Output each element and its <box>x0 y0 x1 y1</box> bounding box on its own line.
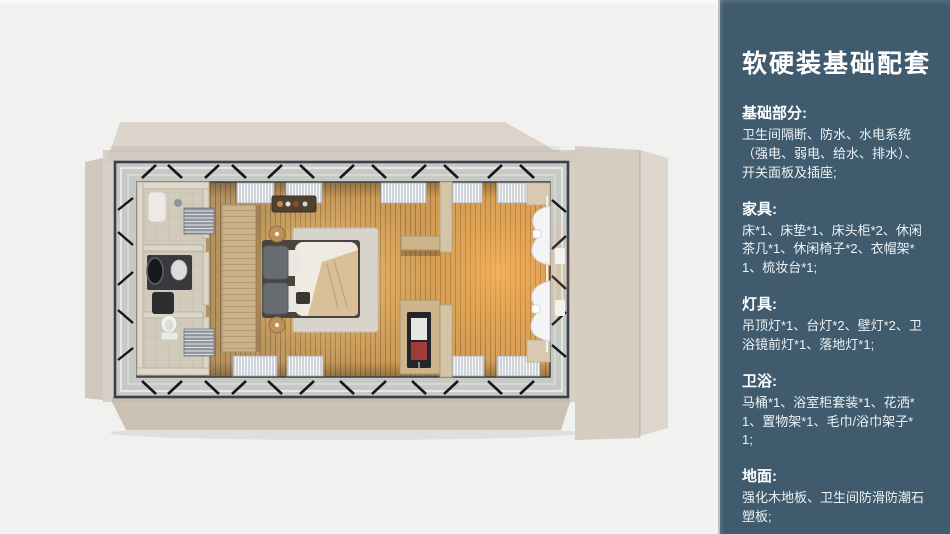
bottle-2 <box>286 202 291 207</box>
right-door-flap-outer <box>640 150 668 436</box>
bathroom-wall-right-b <box>203 252 209 305</box>
stool-item-2 <box>275 323 279 327</box>
panel-title: 软硬装基础配套 <box>742 44 936 80</box>
section-flooring-body: 强化木地板、卫生间防滑防潮石塑板; <box>742 489 924 527</box>
section-furniture-body: 床*1、床垫*1、床头柜*2、休闲茶几*1、休闲椅子*2、衣帽架*1、梳妆台*1… <box>742 222 924 279</box>
toilet-seat <box>165 320 174 331</box>
bathroom-wall-top <box>137 182 209 189</box>
headboard-planks <box>222 205 256 352</box>
section-sanitary: 卫浴: 马桶*1、浴室柜套装*1、花洒*1、置物架*1、毛巾/浴巾架子*1; <box>742 370 936 451</box>
bathroom-wall-bottom <box>137 368 209 375</box>
tieback-holder-1 <box>555 248 565 264</box>
curtain-tie-top <box>533 230 541 238</box>
headboard-shadow <box>256 205 260 352</box>
section-flooring-heading: 地面: <box>742 465 936 486</box>
bottle-1 <box>277 201 283 207</box>
bed-tray <box>296 292 310 304</box>
vanity-mirror <box>147 258 163 284</box>
flap-crease-shadow <box>110 146 560 152</box>
bottle-4 <box>303 202 308 207</box>
section-flooring: 地面: 强化木地板、卫生间防滑防潮石塑板; <box>742 465 936 527</box>
section-sanitary-heading: 卫浴: <box>742 370 936 391</box>
towel-radiator-1 <box>184 208 214 234</box>
section-lighting-body: 吊顶灯*1、台灯*2、壁灯*2、卫浴镜前灯*1、落地灯*1; <box>742 317 924 355</box>
curtain-tie-bottom <box>532 305 540 313</box>
section-sanitary-body: 马桶*1、浴室柜套装*1、花洒*1、置物架*1、毛巾/浴巾架子*1; <box>742 394 924 451</box>
section-lighting-heading: 灯具: <box>742 293 936 314</box>
shell-top-face <box>108 152 575 162</box>
section-furniture: 家具: 床*1、床垫*1、床头柜*2、休闲茶几*1、休闲椅子*2、衣帽架*1、梳… <box>742 198 936 279</box>
slide: 软硬装基础配套 基础部分: 卫生间隔断、防水、水电系统（强电、弱电、给水、排水）… <box>0 0 950 534</box>
bottle-3 <box>293 201 299 207</box>
info-panel: 软硬装基础配套 基础部分: 卫生间隔断、防水、水电系统（强电、弱电、给水、排水）… <box>718 0 950 534</box>
left-roof-flap <box>85 158 103 400</box>
gray-pillow-2 <box>263 283 288 314</box>
bathroom <box>137 182 214 375</box>
vanity-sink <box>171 260 187 280</box>
shower-bench <box>148 192 166 222</box>
floorplan-render <box>0 0 718 534</box>
fridge-shelf-contents-top <box>411 318 427 340</box>
toilet-tank <box>161 332 178 340</box>
tieback-holder-2 <box>555 300 565 316</box>
section-lighting: 灯具: 吊顶灯*1、台灯*2、壁灯*2、卫浴镜前灯*1、落地灯*1; <box>742 293 936 355</box>
towel-radiator-2 <box>184 329 214 356</box>
divider-wall-bottom <box>440 305 452 377</box>
shower-head <box>174 199 182 207</box>
bottom-roof-flap <box>112 402 570 430</box>
right-door-flap-inner <box>575 146 640 440</box>
divider-wall-top <box>440 182 452 252</box>
section-basics: 基础部分: 卫生间隔断、防水、水电系统（强电、弱电、给水、排水）、开关面板及插座… <box>742 102 936 183</box>
section-basics-heading: 基础部分: <box>742 102 936 123</box>
section-basics-body: 卫生间隔断、防水、水电系统（强电、弱电、给水、排水）、开关面板及插座; <box>742 126 924 183</box>
bathroom-partition-1 <box>143 245 203 251</box>
shelf-shadow <box>401 250 440 256</box>
stool-item-1 <box>275 232 279 236</box>
bathroom-wall-left <box>137 182 143 375</box>
vanity-stool <box>152 292 174 314</box>
section-furniture-heading: 家具: <box>742 198 936 219</box>
fridge-shelf-contents-bottom <box>411 342 427 360</box>
gray-pillow-1 <box>263 246 288 279</box>
wall-shelf <box>401 236 440 250</box>
